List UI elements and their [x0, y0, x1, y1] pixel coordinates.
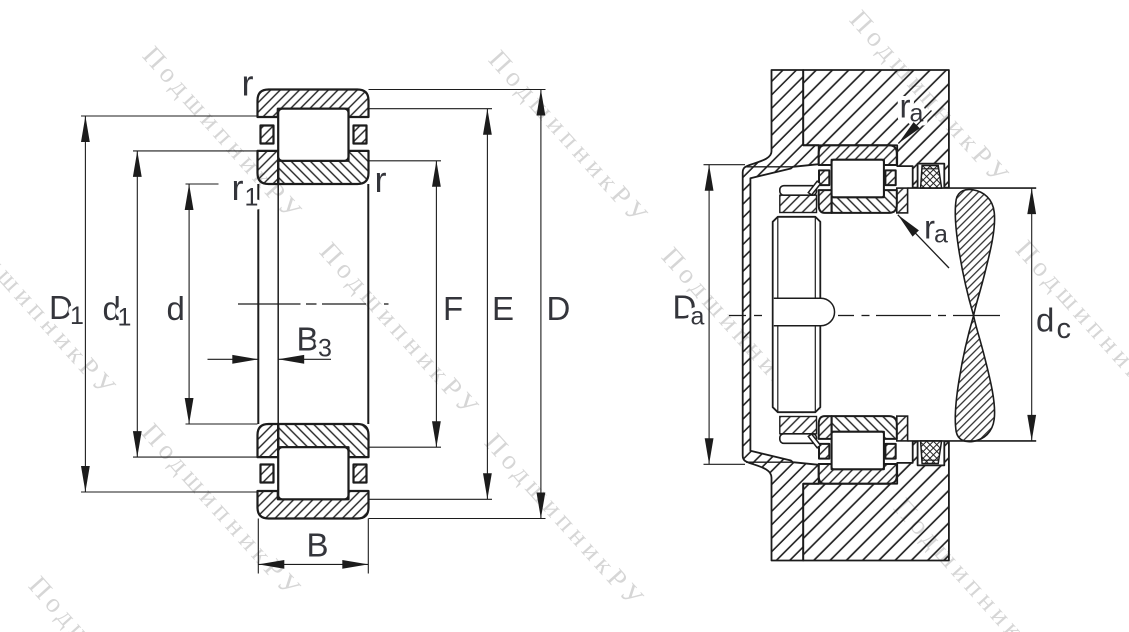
- svg-text:B: B: [307, 527, 329, 564]
- svg-text:r: r: [375, 159, 387, 200]
- svg-text:F: F: [443, 290, 463, 327]
- svg-text:r: r: [242, 63, 254, 104]
- svg-text:d: d: [167, 290, 185, 327]
- svg-text:ra: ra: [924, 209, 948, 249]
- svg-text:ПодшипникРУ: ПодшипникРУ: [479, 427, 653, 615]
- svg-text:ПодшипникРУ: ПодшипникРУ: [314, 236, 488, 424]
- svg-text:ПодшипникРУ: ПодшипникРУ: [23, 570, 197, 632]
- svg-text:d1: d1: [103, 290, 132, 332]
- svg-text:E: E: [492, 290, 514, 327]
- svg-text:D1: D1: [49, 289, 84, 330]
- svg-text:ПодшипникРУ: ПодшипникРУ: [483, 44, 657, 232]
- svg-text:D: D: [547, 290, 571, 327]
